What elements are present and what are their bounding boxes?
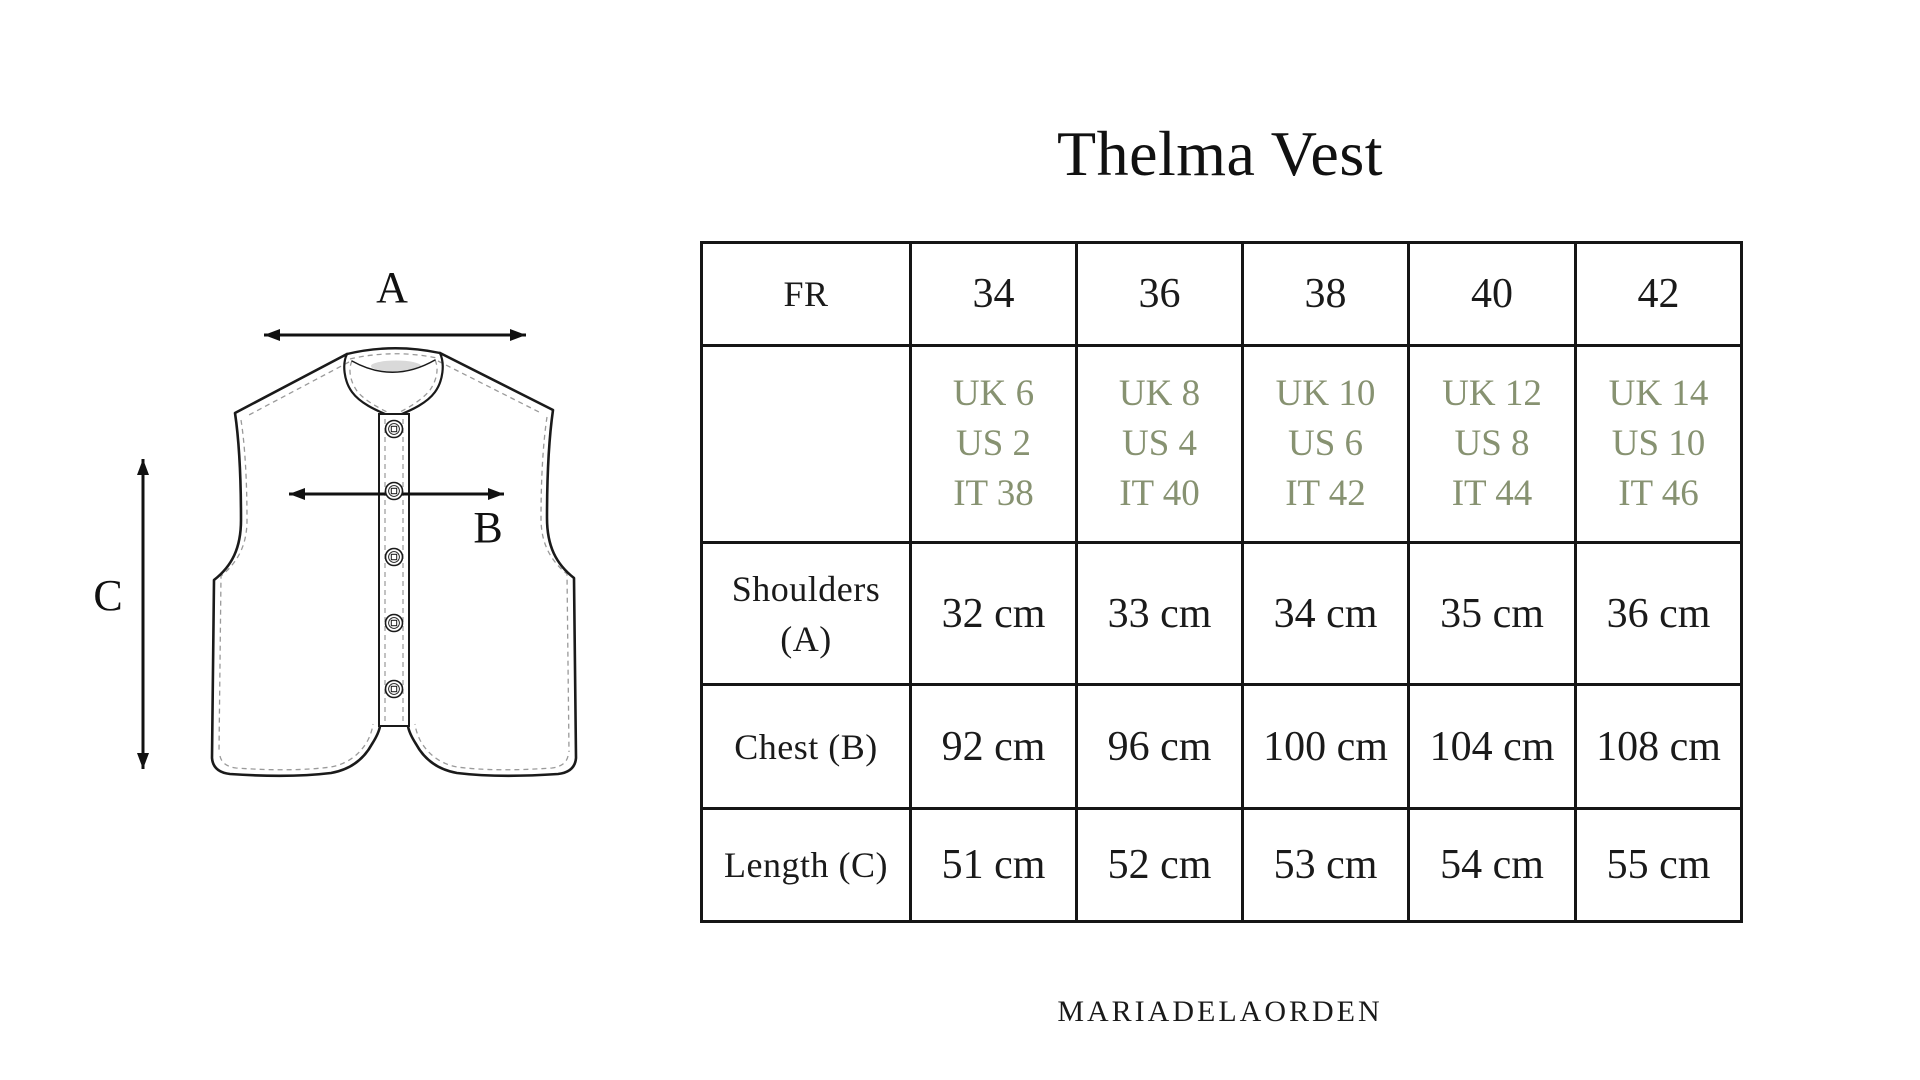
row-label-line: Chest (B) [703, 722, 909, 772]
row-header-length: Length (C) [702, 809, 911, 922]
conversion-uk: UK 14 [1577, 369, 1740, 419]
conversion-cell-5: UK 14 US 10 IT 46 [1576, 346, 1742, 543]
length-value-3: 53 cm [1243, 809, 1409, 922]
table-row-conversions: UK 6 US 2 IT 38 UK 8 US 4 IT 40 UK 10 US… [702, 346, 1742, 543]
label-b: B [473, 503, 502, 552]
conversion-uk: UK 8 [1078, 369, 1241, 419]
shoulder-width-arrow [264, 329, 526, 341]
table-row-shoulders: Shoulders (A) 32 cm 33 cm 34 cm 35 cm 36… [702, 543, 1742, 685]
row-header-shoulders: Shoulders (A) [702, 543, 911, 685]
chest-value-4: 104 cm [1409, 685, 1576, 809]
conversion-cell-4: UK 12 US 8 IT 44 [1409, 346, 1576, 543]
conversion-us: US 8 [1410, 419, 1574, 469]
conversion-it: IT 44 [1410, 469, 1574, 519]
size-fr-col-4: 40 [1409, 243, 1576, 346]
button [386, 421, 403, 438]
conversion-cell-2: UK 8 US 4 IT 40 [1077, 346, 1243, 543]
shoulders-value-3: 34 cm [1243, 543, 1409, 685]
size-fr-col-2: 36 [1077, 243, 1243, 346]
size-table: FR 34 36 38 40 42 UK 6 US 2 IT 38 UK 8 U… [700, 241, 1743, 923]
button [386, 615, 403, 632]
row-header-fr: FR [702, 243, 911, 346]
length-arrow [137, 459, 149, 769]
button [386, 483, 403, 500]
label-c: C [93, 571, 122, 620]
size-fr-col-3: 38 [1243, 243, 1409, 346]
page-title: Thelma Vest [700, 122, 1740, 186]
vest-illustration: A B C [80, 260, 600, 800]
row-label-line: Length (C) [703, 840, 909, 890]
conversion-cell-1: UK 6 US 2 IT 38 [911, 346, 1077, 543]
chest-value-2: 96 cm [1077, 685, 1243, 809]
conversion-uk: UK 12 [1410, 369, 1574, 419]
conversion-uk: UK 10 [1244, 369, 1407, 419]
shoulders-value-1: 32 cm [911, 543, 1077, 685]
size-guide-page: A B C Thelma Vest FR 34 36 38 40 42 [0, 0, 1920, 1080]
table-row-chest: Chest (B) 92 cm 96 cm 100 cm 104 cm 108 … [702, 685, 1742, 809]
brand-logo: MARIADELAORDEN [700, 995, 1740, 1029]
chest-value-5: 108 cm [1576, 685, 1742, 809]
conversion-it: IT 42 [1244, 469, 1407, 519]
length-value-1: 51 cm [911, 809, 1077, 922]
table-row-length: Length (C) 51 cm 52 cm 53 cm 54 cm 55 cm [702, 809, 1742, 922]
size-fr-col-1: 34 [911, 243, 1077, 346]
row-label-line: Shoulders [703, 564, 909, 614]
chest-value-3: 100 cm [1243, 685, 1409, 809]
button [386, 681, 403, 698]
button-placket [379, 414, 409, 726]
length-value-2: 52 cm [1077, 809, 1243, 922]
conversion-it: IT 40 [1078, 469, 1241, 519]
conversion-us: US 4 [1078, 419, 1241, 469]
row-header-chest: Chest (B) [702, 685, 911, 809]
conversion-us: US 10 [1577, 419, 1740, 469]
length-value-4: 54 cm [1409, 809, 1576, 922]
size-fr-col-5: 42 [1576, 243, 1742, 346]
shoulders-value-2: 33 cm [1077, 543, 1243, 685]
length-value-5: 55 cm [1576, 809, 1742, 922]
conversion-cell-3: UK 10 US 6 IT 42 [1243, 346, 1409, 543]
shoulders-value-4: 35 cm [1409, 543, 1576, 685]
chest-value-1: 92 cm [911, 685, 1077, 809]
conversion-it: IT 46 [1577, 469, 1740, 519]
conversions-empty-cell [702, 346, 911, 543]
conversion-it: IT 38 [912, 469, 1075, 519]
label-a: A [376, 263, 408, 312]
conversion-us: US 6 [1244, 419, 1407, 469]
conversion-us: US 2 [912, 419, 1075, 469]
shoulders-value-5: 36 cm [1576, 543, 1742, 685]
conversion-uk: UK 6 [912, 369, 1075, 419]
button [386, 549, 403, 566]
table-row-fr-sizes: FR 34 36 38 40 42 [702, 243, 1742, 346]
row-label-line: (A) [703, 614, 909, 664]
